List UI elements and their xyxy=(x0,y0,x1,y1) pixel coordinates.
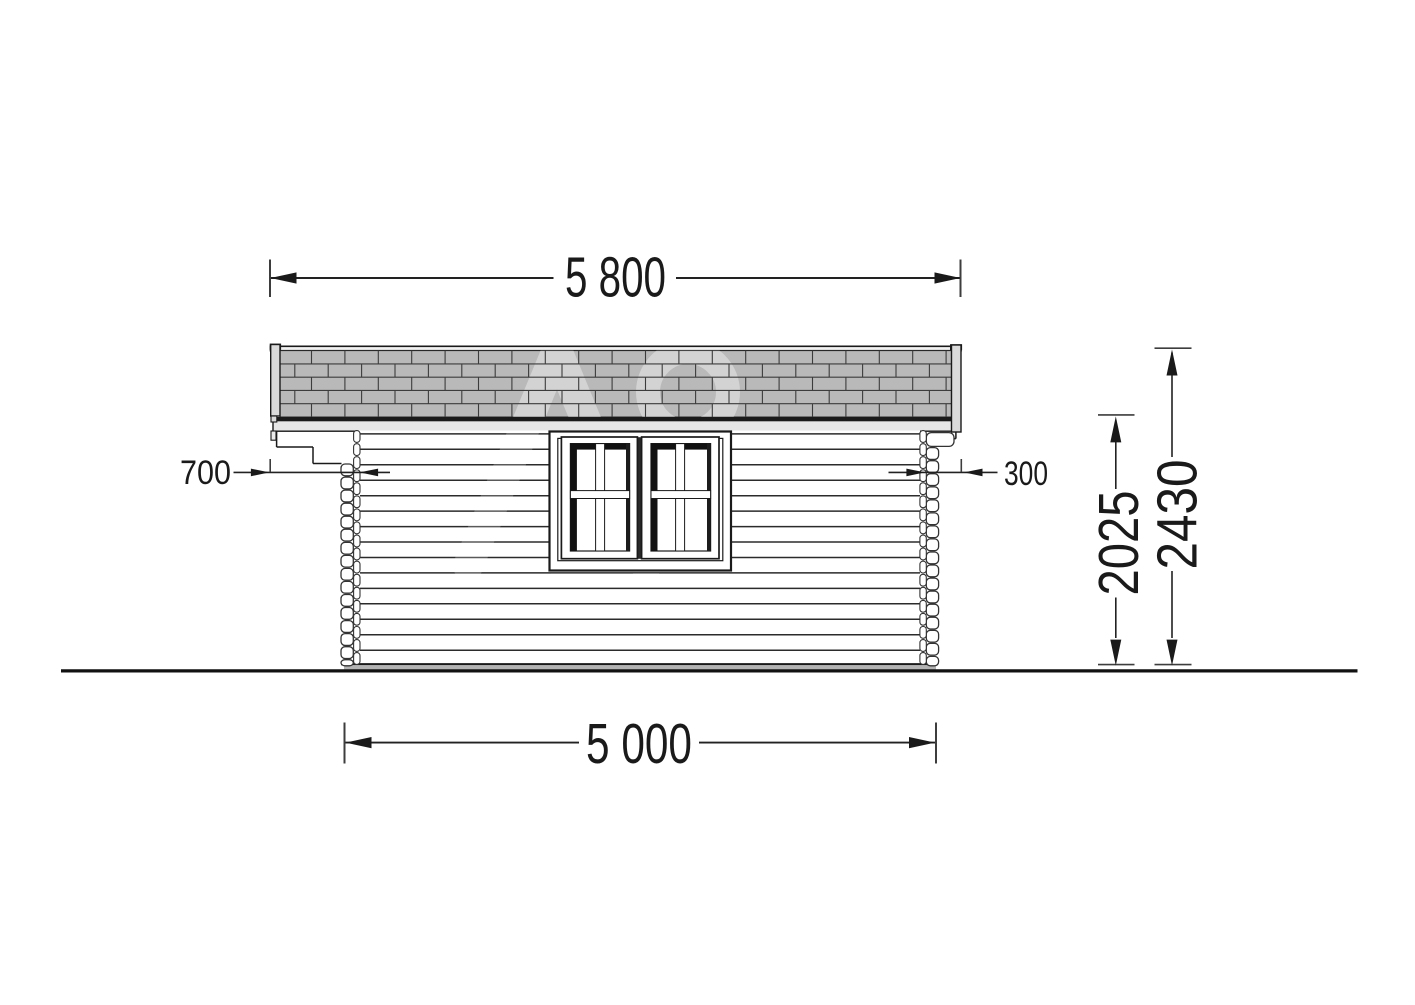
svg-text:5 000: 5 000 xyxy=(586,712,692,776)
svg-text:700: 700 xyxy=(180,454,231,492)
svg-text:2430: 2430 xyxy=(1146,460,1209,570)
svg-text:2025: 2025 xyxy=(1088,491,1151,596)
svg-text:300: 300 xyxy=(1004,455,1048,493)
svg-text:5 800: 5 800 xyxy=(565,246,666,309)
